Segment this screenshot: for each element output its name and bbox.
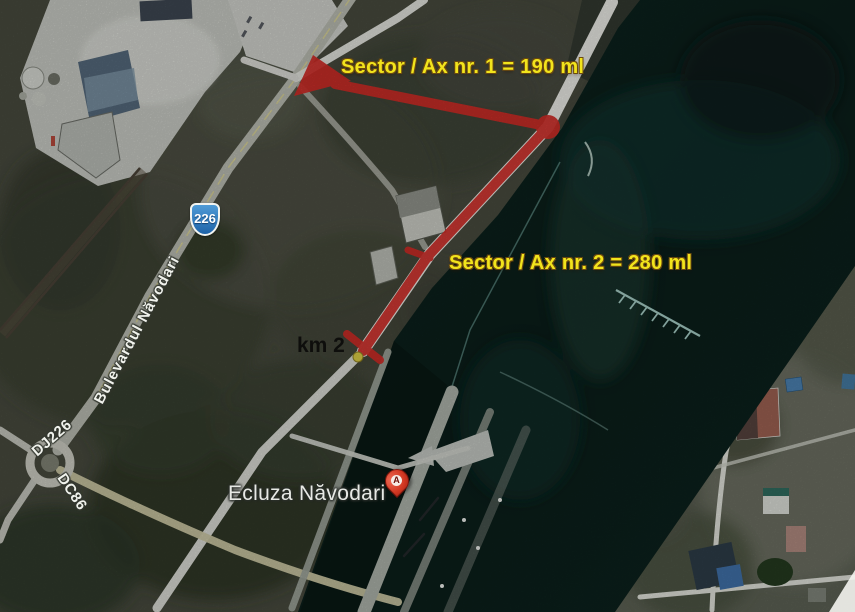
map-background [0,0,855,612]
satellite-map: Sector / Ax nr. 1 = 190 ml Sector / Ax n… [0,0,855,612]
photo-grain [0,0,855,612]
location-pin-icon: A [384,468,408,504]
pin-letter: A [391,475,402,486]
